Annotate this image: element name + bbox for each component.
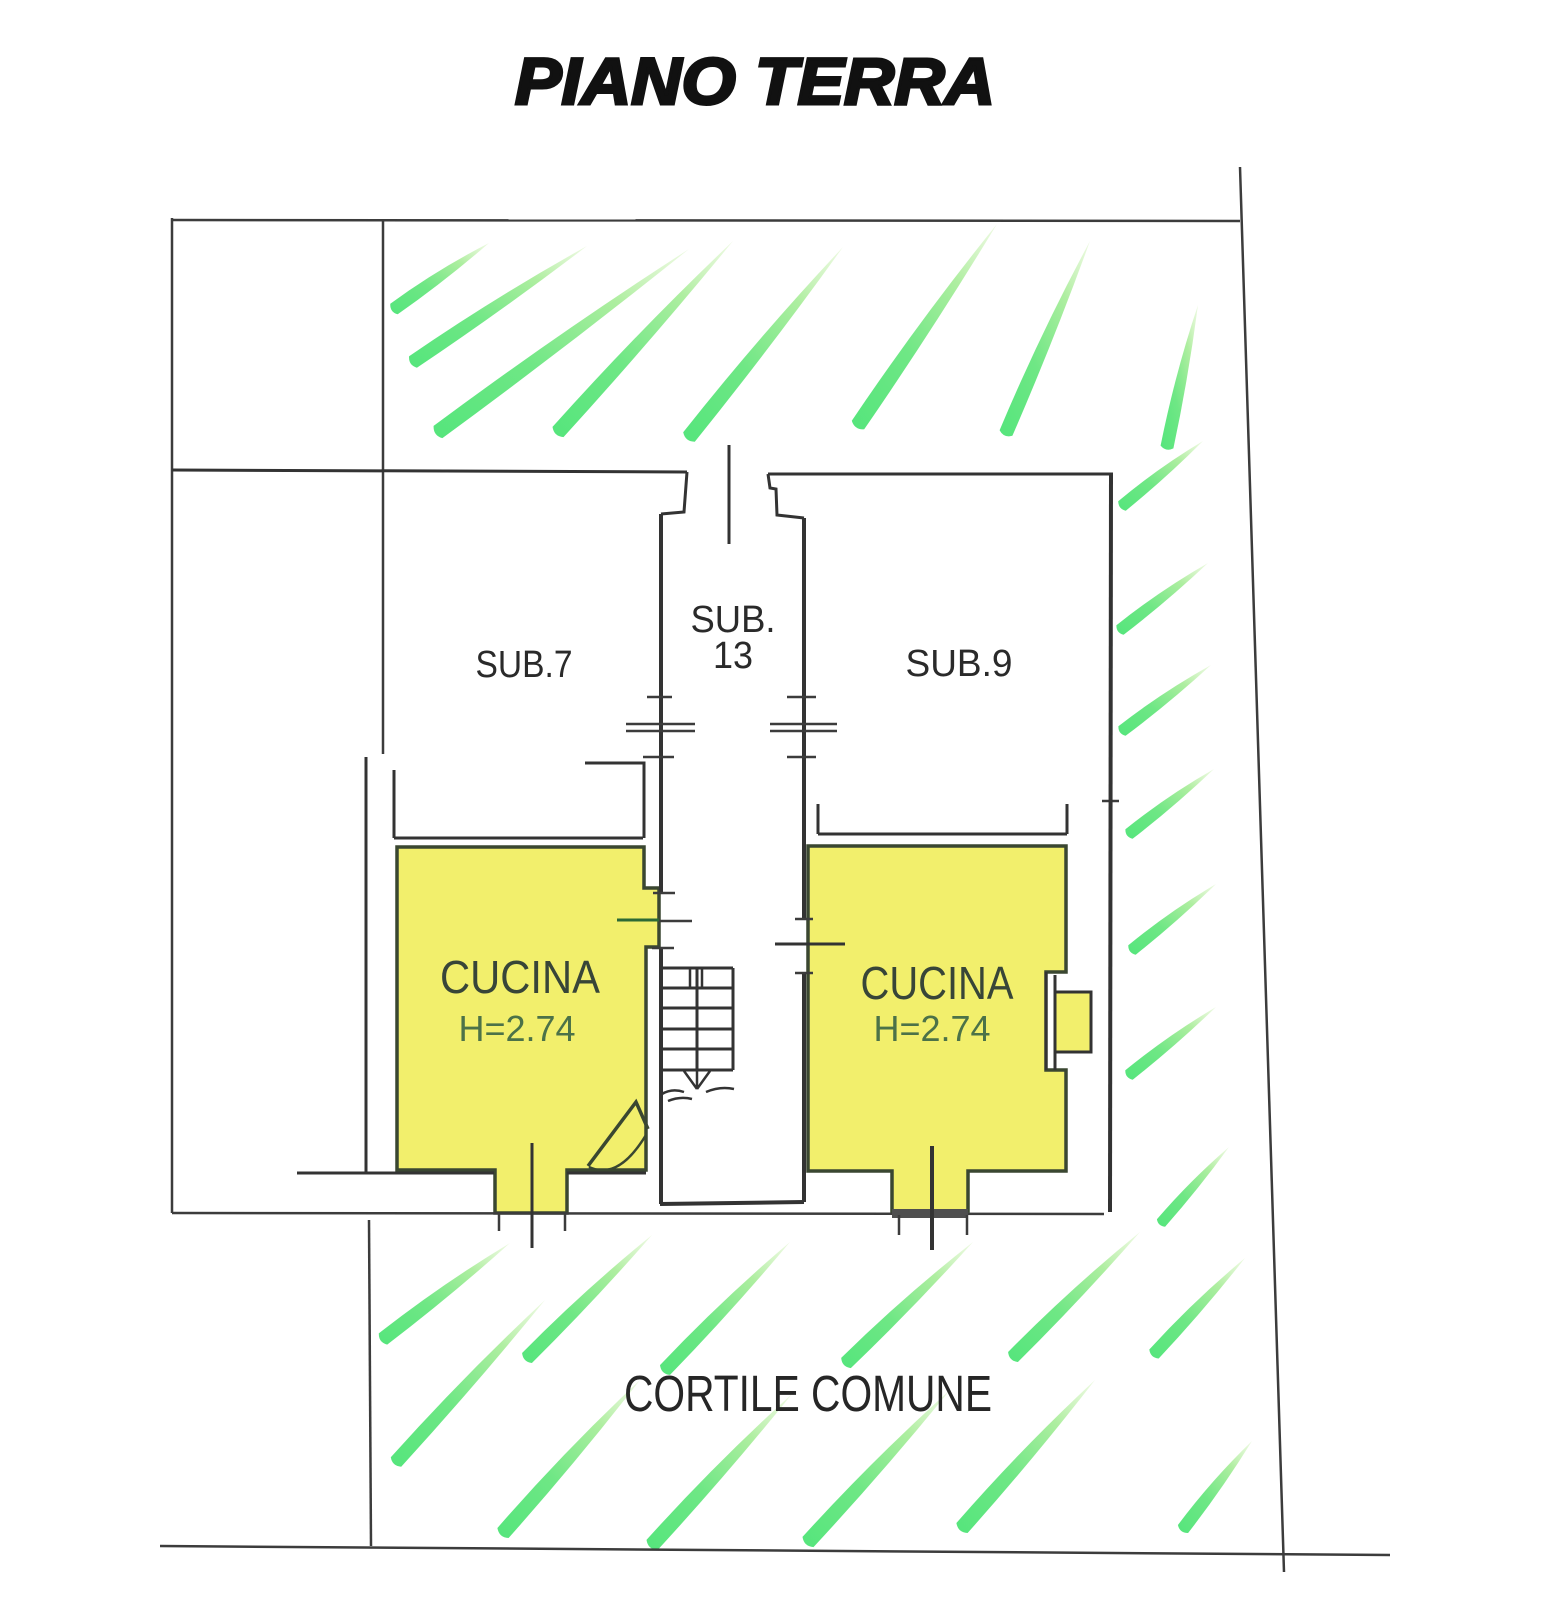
- svg-text:SUB.7: SUB.7: [476, 644, 573, 686]
- svg-text:CUCINA: CUCINA: [861, 957, 1014, 1009]
- svg-text:CUCINA: CUCINA: [440, 951, 600, 1003]
- svg-text:H=2.74: H=2.74: [873, 1008, 990, 1049]
- svg-text:PIANO TERRA: PIANO TERRA: [515, 44, 995, 118]
- svg-text:13: 13: [713, 635, 753, 677]
- svg-text:CORTILE COMUNE: CORTILE COMUNE: [624, 1365, 992, 1422]
- svg-text:SUB.9: SUB.9: [906, 643, 1013, 685]
- svg-text:H=2.74: H=2.74: [458, 1008, 575, 1049]
